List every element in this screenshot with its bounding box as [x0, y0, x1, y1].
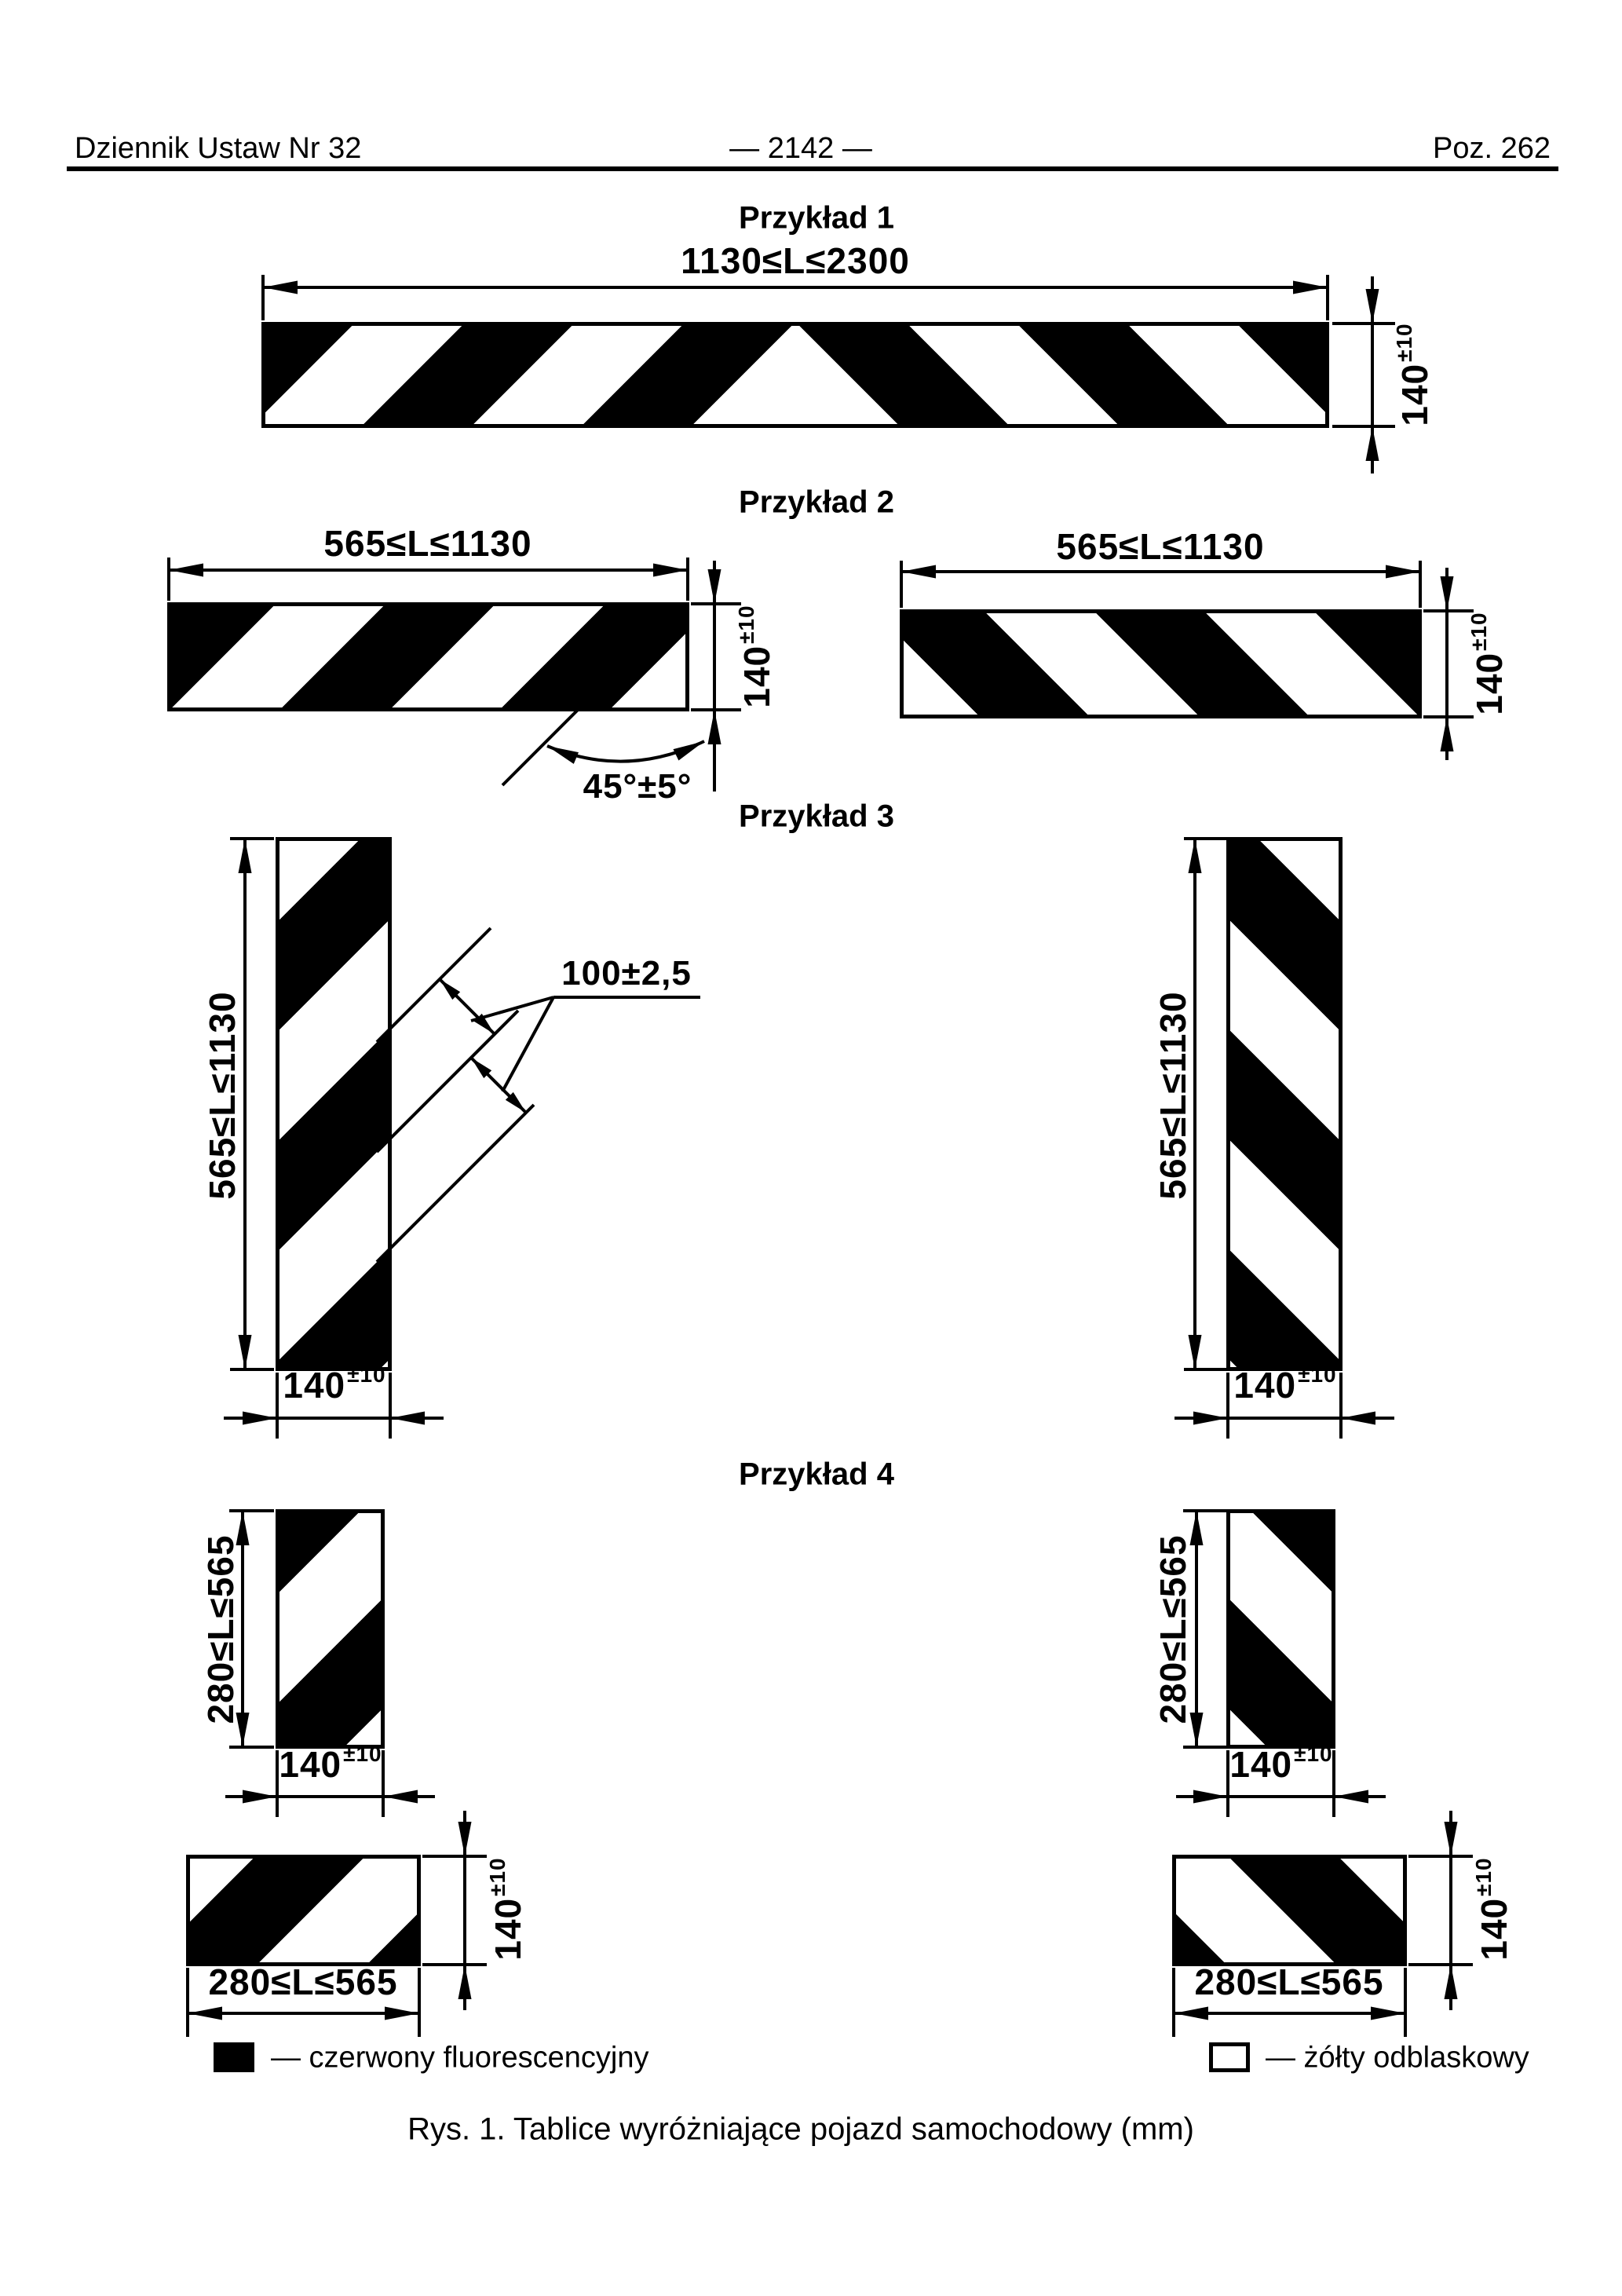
journal-name: Dziennik Ustaw Nr 32: [75, 132, 361, 166]
plate-example4-bottom-left: [186, 1855, 421, 1966]
red-legend-label: — czerwony fluorescencyjny: [271, 2042, 649, 2075]
document-page: Dziennik Ustaw Nr 32 — 2142 — Poz. 262 P…: [0, 0, 1622, 2296]
example4-bottom-left-length-label: 280≤L≤565: [208, 1961, 397, 2003]
example1-length-label: 1130≤L≤2300: [681, 239, 910, 282]
example4-title: Przykład 4: [739, 1457, 894, 1493]
plate-example3-left: [276, 837, 392, 1371]
example2-title: Przykład 2: [739, 485, 894, 521]
example3-right-width-label: 140±10: [1233, 1364, 1335, 1406]
example4-right-width-label: 140±10: [1229, 1743, 1331, 1786]
example4-bottom-right-height-label: 140±10: [1473, 1859, 1515, 1960]
example3-left-height-label: 565≤L≤1130: [201, 991, 243, 1199]
yellow-color-swatch: [1209, 2042, 1250, 2072]
plate-example4-right: [1226, 1509, 1335, 1749]
red-color-swatch: [214, 2042, 254, 2072]
example3-stripe-width-label: 100±2,5: [561, 954, 692, 993]
example3-right-height-label: 565≤L≤1130: [1152, 991, 1194, 1199]
yellow-legend-label: — żółty odblaskowy: [1266, 2042, 1529, 2075]
plate-example4-left: [276, 1509, 385, 1749]
example2-right-height-label: 140±10: [1468, 613, 1511, 715]
plate-example4-bottom-right: [1172, 1855, 1407, 1966]
example2-left-height-label: 140±10: [736, 606, 778, 707]
example4-left-width-label: 140±10: [279, 1743, 380, 1786]
example4-bottom-left-height-label: 140±10: [487, 1859, 529, 1960]
example2-left-length-label: 565≤L≤1130: [323, 522, 532, 565]
example3-title: Przykład 3: [739, 799, 894, 835]
plate-example2-right: [900, 609, 1422, 718]
example4-right-height-label: 280≤L≤565: [1152, 1534, 1194, 1724]
example1-height-label: 140±10: [1394, 324, 1436, 426]
example3-left-width-label: 140±10: [283, 1364, 384, 1406]
example2-angle-label: 45°±5°: [583, 767, 692, 806]
page-number: — 2142 —: [729, 132, 872, 166]
figure-caption: Rys. 1. Tablice wyróżniające pojazd samo…: [407, 2112, 1194, 2148]
example1-title: Przykład 1: [739, 201, 894, 236]
header-rule: [67, 166, 1558, 171]
plate-example3-right: [1226, 837, 1343, 1371]
example4-left-height-label: 280≤L≤565: [199, 1534, 242, 1724]
position-number: Poz. 262: [1433, 132, 1551, 166]
plate-example2-left: [167, 602, 689, 711]
example4-bottom-right-length-label: 280≤L≤565: [1194, 1961, 1383, 2003]
example2-right-length-label: 565≤L≤1130: [1056, 525, 1264, 568]
plate-example1: [261, 322, 1329, 428]
